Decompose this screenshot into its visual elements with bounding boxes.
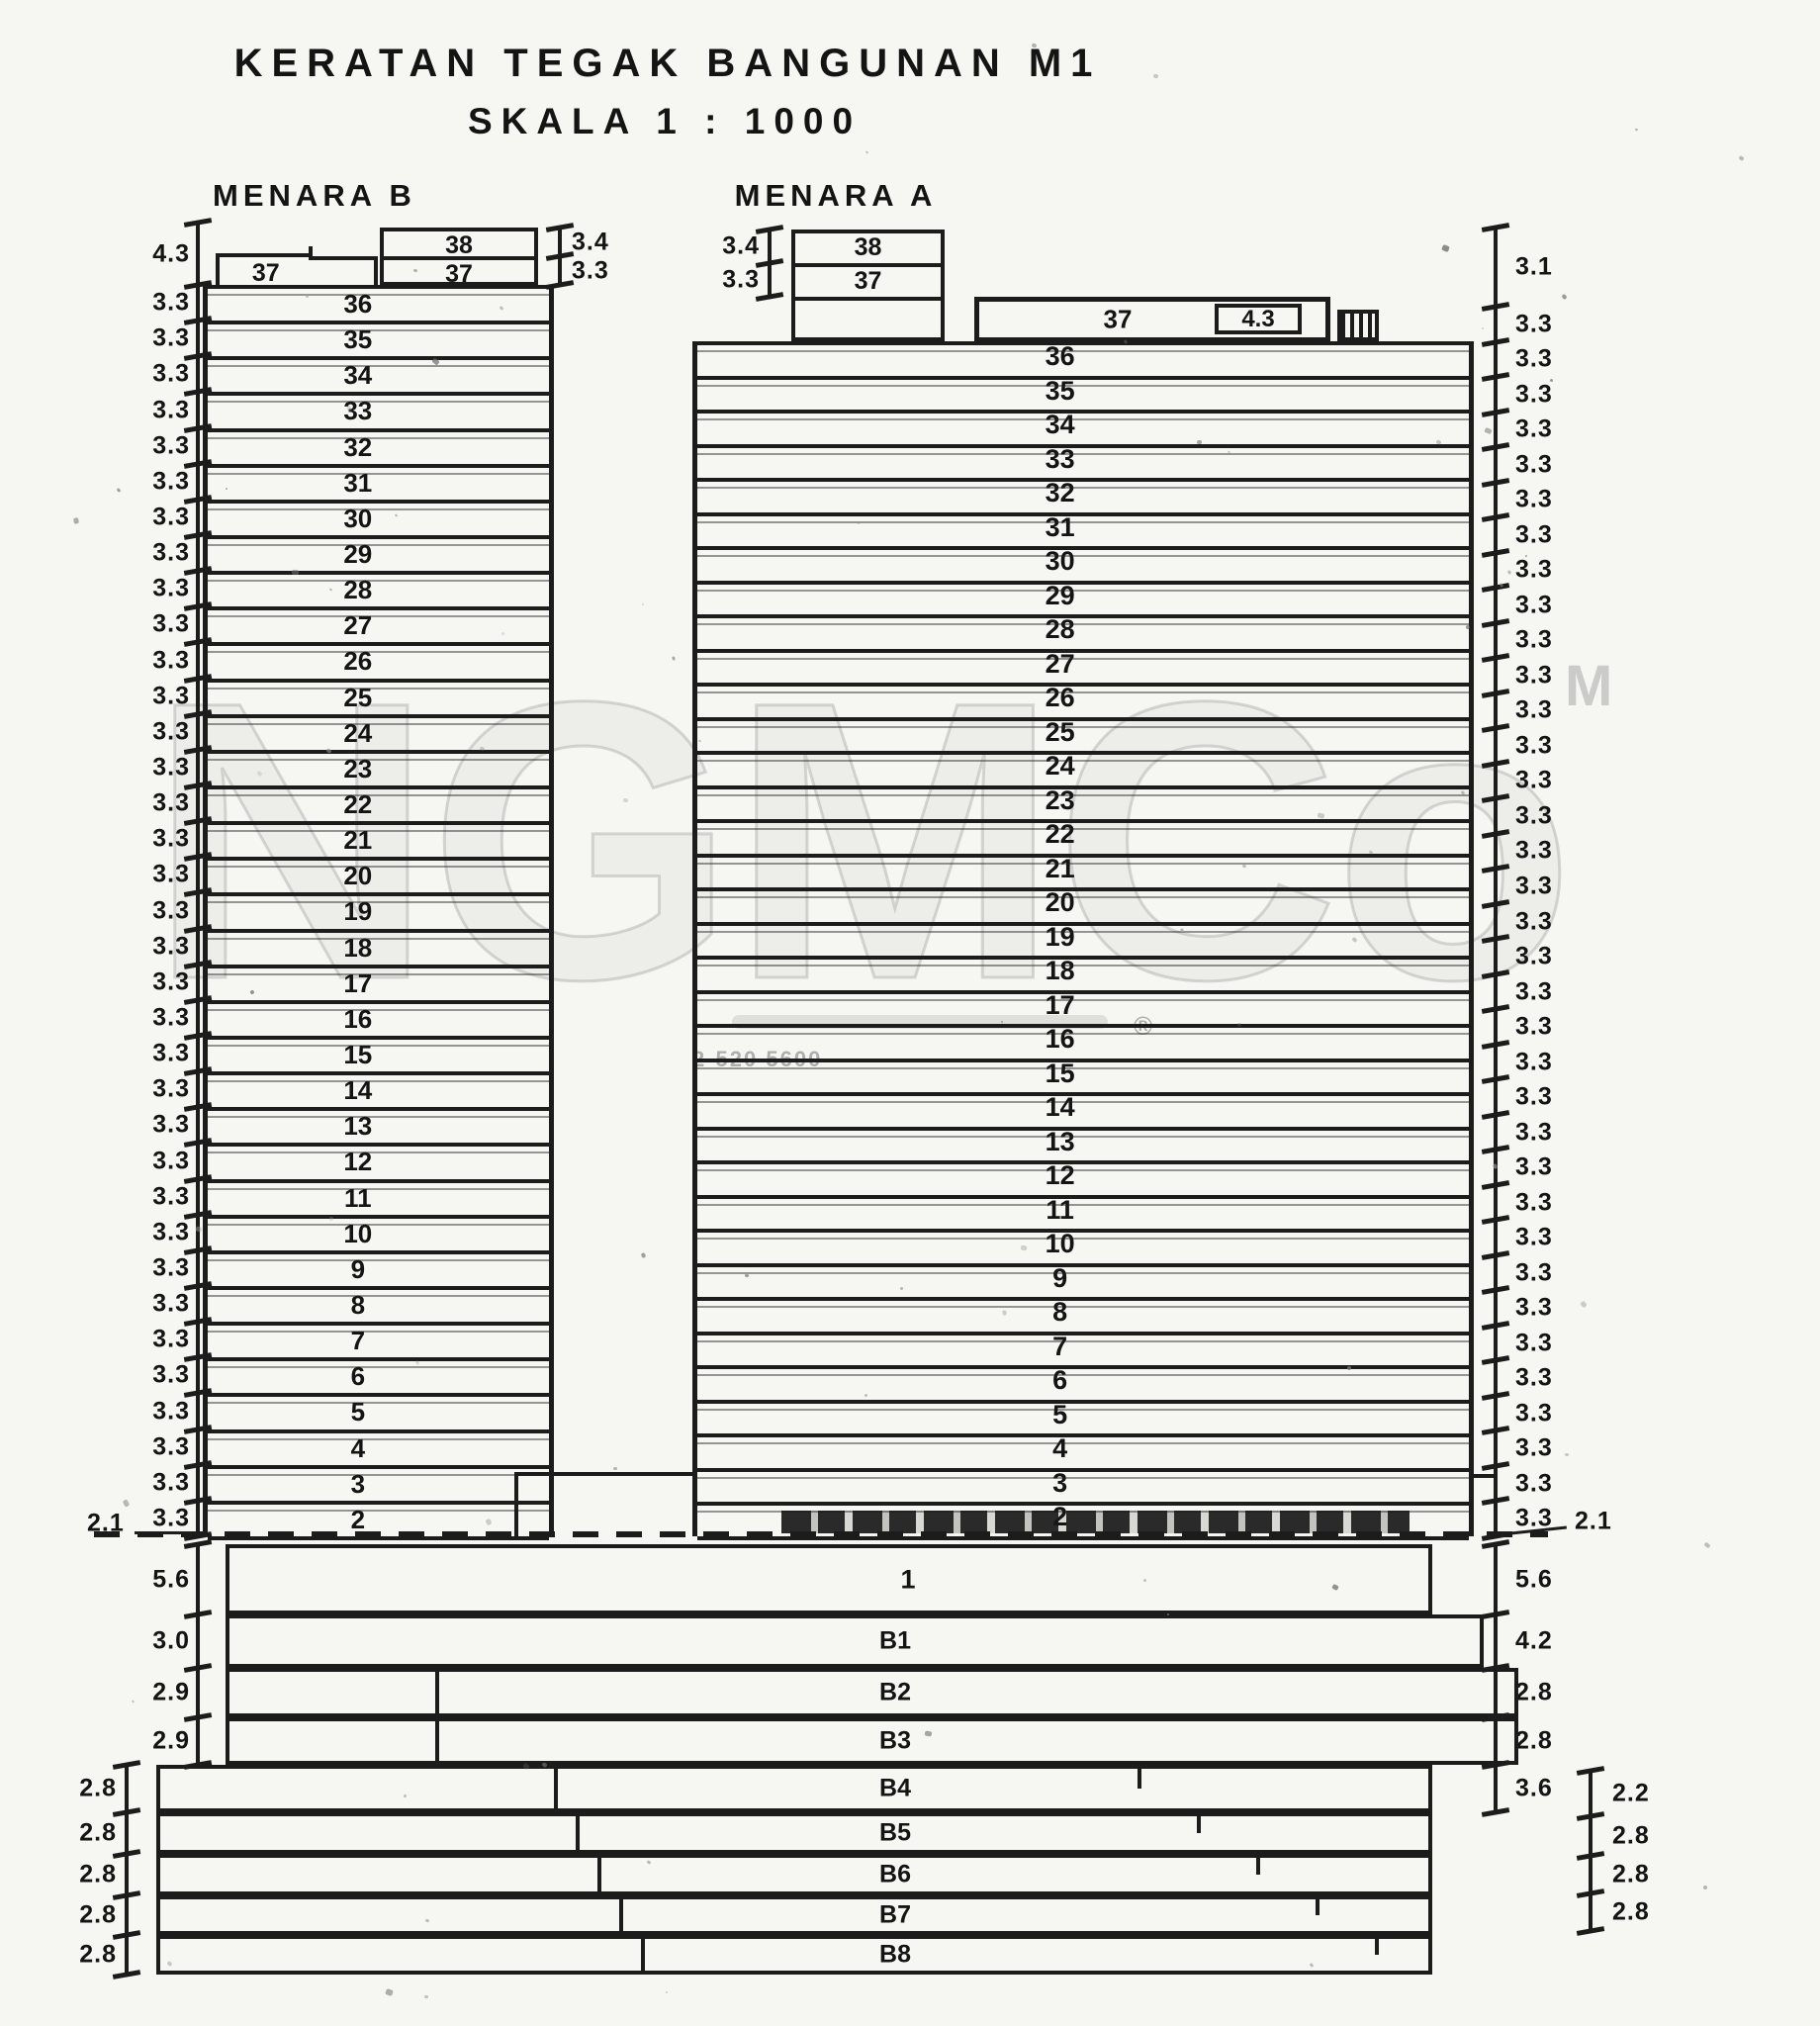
floor-number: 16: [343, 1004, 372, 1035]
dim-label: 3.3: [152, 396, 190, 424]
basement-band: [156, 1895, 1432, 1935]
dim-label: 3.3: [152, 1253, 190, 1282]
floor-number: 29: [1046, 581, 1075, 611]
basement-band: [156, 1854, 1432, 1895]
floor-number: 19: [343, 896, 372, 927]
floor-row: 5: [208, 1397, 549, 1432]
dim-label: 3.3: [1515, 1364, 1553, 1393]
floor-row: 26: [697, 687, 1469, 721]
dim-label: 3.3: [152, 431, 190, 460]
floor-row: 28: [208, 575, 549, 610]
floor-row: 22: [697, 823, 1469, 858]
floor-number: 9: [351, 1254, 365, 1285]
floor-number: 16: [1046, 1024, 1075, 1055]
tower-a-penthouse: 38 37: [791, 230, 945, 341]
basement-floor-number: B5: [879, 1819, 911, 1848]
floor-number: 14: [1046, 1092, 1075, 1123]
floor-number: 5: [351, 1397, 365, 1427]
dim-label: 3.3: [1515, 310, 1553, 338]
floor-number: 20: [343, 861, 372, 891]
floor-number: 14: [343, 1075, 372, 1106]
floor-number: 17: [1046, 990, 1075, 1021]
scan-speckle: [1484, 427, 1492, 434]
scan-speckle: [864, 1394, 867, 1397]
dim-label: 3.3: [1515, 661, 1553, 690]
scan-speckle: [117, 488, 122, 493]
floor-row: 35: [208, 324, 549, 360]
dim-label: 3.3: [152, 1003, 190, 1032]
dim-label: 3.3: [1515, 1013, 1553, 1042]
basement-band: [156, 1765, 1432, 1812]
basement-step-line: [1256, 1854, 1260, 1875]
floor-number: 4: [1052, 1433, 1067, 1464]
dim-label: 3.1: [1515, 253, 1553, 282]
dim-label: 2.8: [1515, 1727, 1553, 1756]
basement-floor-number: B7: [879, 1901, 911, 1930]
floor-row: 19: [697, 926, 1469, 961]
ground-floor-band: [226, 1544, 1432, 1614]
scan-speckle: [925, 1730, 933, 1736]
dim-label: 3.3: [152, 1504, 190, 1532]
dim-label: 3.3: [1515, 450, 1553, 479]
scan-speckle: [1152, 73, 1158, 79]
dim-label: 3.3: [1515, 1224, 1553, 1252]
blueprint-canvas: KERATAN TEGAK BANGUNAN M1 SKALA 1 : 1000…: [0, 0, 1820, 2026]
tower-b-penthouse-floor-38: 38: [384, 231, 534, 260]
floor-row: 13: [697, 1131, 1469, 1165]
floor-row: 25: [697, 721, 1469, 756]
floor-row: 14: [208, 1075, 549, 1111]
floor-number: 27: [343, 610, 372, 641]
floor-number: 3: [1052, 1468, 1067, 1499]
floor-row: 6: [208, 1361, 549, 1397]
floor-row: 28: [697, 618, 1469, 653]
floor-row: 20: [208, 861, 549, 896]
floor-number: 30: [343, 504, 372, 534]
floor-number: 28: [343, 575, 372, 605]
floor-number: 35: [343, 324, 372, 355]
dim-label: 3.3: [1515, 1118, 1553, 1147]
floor-row: 17: [697, 994, 1469, 1029]
dim-label: 2.8: [79, 1861, 117, 1889]
dim-label: 3.3: [1515, 1329, 1553, 1357]
scan-speckle: [385, 1988, 394, 1996]
floor-row: 32: [697, 482, 1469, 516]
scan-speckle: [1703, 1886, 1708, 1890]
floor-number: 35: [1046, 376, 1075, 407]
dim-label: 2.8: [79, 1775, 117, 1803]
dim-label: 2.8: [1612, 1861, 1650, 1889]
basement-floor-number: B6: [879, 1861, 911, 1889]
floor-number: 17: [343, 968, 372, 999]
floor-number: 9: [1052, 1263, 1067, 1294]
dim-label: 3.3: [152, 717, 190, 746]
dim-label: 2.8: [1612, 1898, 1650, 1927]
floor-number: 15: [1046, 1059, 1075, 1089]
floor-row: 10: [208, 1219, 549, 1254]
floor-row: 29: [697, 585, 1469, 619]
dim-label: 3.3: [1515, 801, 1553, 830]
dim-label: 5.6: [152, 1565, 190, 1594]
dim-line: [125, 1765, 129, 1975]
dim-label: 3.3: [152, 1290, 190, 1319]
floor-row: 21: [208, 825, 549, 861]
dim-tick: [1577, 1926, 1604, 1936]
basement-band: [156, 1935, 1432, 1975]
floor-number: 10: [1046, 1229, 1075, 1259]
floor-row: 7: [697, 1335, 1469, 1370]
basement-step-line: [619, 1895, 623, 1935]
dim-tick: [546, 280, 574, 290]
floor-row: 17: [208, 968, 549, 1004]
floor-number: 3: [351, 1469, 365, 1500]
basement-band: [226, 1717, 1518, 1765]
floor-row: 16: [697, 1028, 1469, 1062]
floor-number: 12: [1046, 1160, 1075, 1191]
floor-number: 20: [1046, 887, 1075, 918]
floor-number: 15: [343, 1040, 372, 1070]
dim-label: 2.8: [79, 1941, 117, 1970]
floor-number: 18: [1046, 956, 1075, 986]
floor-number: 18: [343, 932, 372, 963]
floor-number: 5: [1052, 1400, 1067, 1430]
dim-label: 3.3: [1515, 1083, 1553, 1112]
roof-hatch-box: [1337, 310, 1379, 341]
dim-label: 3.3: [152, 896, 190, 925]
floor-row: 3: [697, 1472, 1469, 1507]
dim-label: 3.3: [152, 1397, 190, 1426]
basement-step-line: [576, 1812, 580, 1854]
floor-number: 32: [343, 432, 372, 463]
basement-step-line: [1197, 1812, 1201, 1833]
scan-speckle: [132, 1700, 135, 1704]
tower-b-label: MENARA B: [213, 178, 416, 214]
floor-row: 5: [697, 1404, 1469, 1438]
tower-a-penthouse-floor-37: 37: [795, 267, 941, 301]
dim-label: 3.3: [152, 360, 190, 389]
floor-number: 11: [344, 1182, 372, 1213]
basement-step-line: [1375, 1935, 1379, 1955]
basement-step-line: [554, 1765, 558, 1812]
dim-label: 3.3: [1515, 1048, 1553, 1076]
dim-label: 3.3: [152, 1218, 190, 1246]
dim-label: 3.3: [1515, 1434, 1553, 1463]
floor-number: 26: [1046, 683, 1075, 713]
dim-label: 3.3: [152, 932, 190, 961]
dim-label: 3.3: [1515, 731, 1553, 760]
floor-number: 32: [1046, 478, 1075, 508]
floor-row: 27: [697, 653, 1469, 688]
dim-label: 3.3: [152, 467, 190, 496]
floor-number: 34: [343, 360, 372, 391]
floor-row: 23: [697, 789, 1469, 824]
dim-label: 3.3: [152, 967, 190, 996]
floor-row: 33: [208, 396, 549, 431]
floor-number: 36: [343, 289, 372, 320]
floor-row: 9: [208, 1254, 549, 1290]
basement-floor-number: B3: [879, 1727, 911, 1756]
scan-speckle: [613, 1467, 617, 1470]
floor-row: 4: [208, 1433, 549, 1469]
dim-label: 3.3: [152, 503, 190, 531]
floor-number: 23: [343, 754, 372, 784]
dim-label: 3.3: [1515, 1153, 1553, 1182]
dim-label: 3.3: [1515, 415, 1553, 444]
dim-label: 3.3: [152, 539, 190, 568]
floor-row: 24: [208, 718, 549, 754]
basement-band: [226, 1614, 1484, 1668]
floor-number: 26: [343, 646, 372, 677]
floor-number: 31: [1046, 512, 1075, 543]
tower-b-penthouse-floor-37: 37: [384, 260, 534, 282]
dim-label: 2.8: [1612, 1822, 1650, 1851]
dim-label: 3.3: [152, 1432, 190, 1461]
floor-row: 27: [208, 610, 549, 646]
dim-label: 3.3: [152, 1111, 190, 1140]
floor-number: 28: [1046, 614, 1075, 645]
dim-label: 3.4: [572, 228, 609, 256]
dim-tick: [756, 292, 783, 302]
tower-a-roof-band: 37 4.3: [974, 297, 1330, 341]
basement-band: [226, 1668, 1518, 1717]
basement-floor-number: B4: [879, 1775, 911, 1803]
basement-floor-number: B8: [879, 1941, 911, 1970]
scan-speckle: [1703, 1542, 1710, 1549]
scan-speckle: [666, 1991, 668, 1993]
floor-row: 8: [208, 1290, 549, 1326]
floor-number: 27: [1046, 649, 1075, 680]
floor-number: 22: [1046, 819, 1075, 850]
floor-row: 16: [208, 1004, 549, 1040]
floor-row: 33: [697, 448, 1469, 483]
floor-number: 7: [1052, 1332, 1067, 1362]
dim-label: 3.3: [152, 1075, 190, 1104]
ground-surface-marking: [781, 1511, 1410, 1533]
tower-a-label: MENARA A: [735, 178, 938, 214]
scan-speckle: [413, 269, 417, 273]
dim-label: 4.3: [152, 239, 190, 268]
ground-floor-number: 1: [900, 1564, 915, 1595]
floor-number: 12: [343, 1147, 372, 1177]
dim-label: 4.2: [1515, 1627, 1553, 1656]
floor-number: 33: [1046, 444, 1075, 475]
basement-step-line: [1137, 1765, 1141, 1789]
dim-label: 3.6: [1515, 1775, 1553, 1803]
dim-label: 2.9: [152, 1679, 190, 1707]
floor-row: 35: [697, 380, 1469, 414]
dim-label: 3.3: [152, 1468, 190, 1497]
floor-row: 14: [697, 1096, 1469, 1131]
dim-label: 3.3: [152, 575, 190, 603]
floor-number: 23: [1046, 785, 1075, 816]
tower-a-roof-floor-number: 37: [1104, 305, 1133, 335]
floor-row: 20: [697, 891, 1469, 926]
scan-speckle: [642, 603, 645, 606]
floor-row: 11: [208, 1183, 549, 1219]
floor-row: 32: [208, 432, 549, 468]
floor-row: 36: [697, 345, 1469, 380]
floor-row: 6: [697, 1369, 1469, 1404]
scan-speckle: [292, 570, 299, 575]
floor-row: 29: [208, 539, 549, 575]
floor-number: 25: [1046, 717, 1075, 748]
scan-speckle: [73, 517, 79, 524]
floor-number: 8: [351, 1290, 365, 1321]
dim-label: 3.3: [1515, 1258, 1553, 1287]
floor-number: 8: [1052, 1297, 1067, 1328]
dim-label: 3.3: [152, 324, 190, 353]
ground-offset-right: 2.1: [1575, 1508, 1612, 1536]
floor-row: 8: [697, 1301, 1469, 1335]
scan-speckle: [1580, 1301, 1588, 1309]
tower-b-shaft: 3635343332313029282726252423222120191817…: [203, 285, 554, 1536]
dim-label: 3.3: [1515, 1294, 1553, 1323]
dim-label: 3.3: [1515, 696, 1553, 725]
dim-label: 3.3: [152, 1040, 190, 1068]
basement-step-line: [641, 1935, 645, 1975]
floor-row: 36: [208, 289, 549, 324]
floor-row: 10: [697, 1233, 1469, 1267]
dim-label: 3.3: [1515, 837, 1553, 866]
scan-speckle: [1550, 379, 1554, 383]
floor-number: 34: [1046, 410, 1075, 440]
floor-row: 26: [208, 646, 549, 682]
tower-b-penthouse: 38 37: [380, 228, 538, 286]
dim-label: 3.3: [1515, 345, 1553, 374]
floor-number: 10: [343, 1219, 372, 1249]
page-subtitle: SKALA 1 : 1000: [468, 101, 862, 142]
dim-label: 3.3: [1515, 380, 1553, 409]
basement-step-line: [435, 1668, 439, 1717]
floor-number: 6: [351, 1361, 365, 1392]
dim-label: 2.8: [79, 1819, 117, 1848]
tower-b-roof-step: [309, 246, 378, 260]
floor-number: 7: [351, 1326, 365, 1356]
dim-label: 3.3: [152, 1147, 190, 1175]
dim-label: 3.3: [152, 1326, 190, 1354]
tower-b-roof-floor-number: 37: [252, 259, 280, 288]
scan-speckle: [641, 1252, 647, 1258]
scan-speckle: [1441, 244, 1450, 252]
floor-number: 36: [1046, 341, 1075, 372]
tower-a-roof-dim-box: 4.3: [1215, 304, 1302, 334]
floor-row: 30: [208, 504, 549, 539]
dim-label: 3.3: [152, 682, 190, 710]
dim-line: [196, 1544, 200, 1765]
floor-row: 25: [208, 683, 549, 718]
floor-number: 25: [343, 682, 372, 712]
dim-label: 3.3: [152, 861, 190, 889]
dim-label: 3.3: [722, 266, 760, 295]
dim-line: [1494, 228, 1498, 1536]
floor-number: 4: [351, 1432, 365, 1463]
dim-label: 2.8: [79, 1901, 117, 1930]
dim-label: 3.3: [1515, 520, 1553, 549]
dim-tick: [113, 1970, 140, 1980]
dim-label: 3.3: [1515, 767, 1553, 795]
dim-label: 2.9: [152, 1727, 190, 1756]
dim-label: 3.3: [152, 825, 190, 854]
floor-number: 22: [343, 789, 372, 820]
dim-label: 3.3: [152, 1361, 190, 1390]
floor-row: 15: [697, 1062, 1469, 1097]
dim-label: 3.3: [1515, 1505, 1553, 1533]
dim-label: 5.6: [1515, 1565, 1553, 1594]
floor-row: 34: [208, 360, 549, 396]
scan-speckle: [1021, 1244, 1028, 1250]
dim-label: 3.3: [152, 610, 190, 639]
page-title: KERATAN TEGAK BANGUNAN M1: [234, 42, 1102, 86]
dim-label: 3.3: [1515, 591, 1553, 619]
scan-speckle: [1197, 440, 1202, 444]
dim-label: 3.3: [1515, 977, 1553, 1006]
floor-number: 30: [1046, 546, 1075, 577]
floor-row: 24: [697, 755, 1469, 789]
floor-row: 12: [697, 1164, 1469, 1199]
floor-number: 31: [343, 468, 372, 499]
floor-number: 13: [343, 1111, 372, 1142]
floor-row: 34: [697, 414, 1469, 448]
tower-a-roof-dim: 4.3: [1241, 306, 1274, 333]
dim-label: 3.3: [1515, 1399, 1553, 1427]
dim-line: [196, 223, 200, 1536]
floor-number: 29: [343, 539, 372, 570]
floor-number: 21: [1046, 854, 1075, 884]
dim-label: 3.3: [152, 789, 190, 818]
floor-row: 31: [208, 468, 549, 504]
floor-number: 11: [1046, 1195, 1074, 1226]
floor-row: 19: [208, 896, 549, 932]
dim-label: 2.2: [1612, 1780, 1650, 1808]
floor-row: 18: [208, 933, 549, 968]
floor-number: 24: [343, 718, 372, 749]
basement-step-line: [435, 1717, 439, 1765]
floor-number: 24: [1046, 751, 1075, 782]
dim-label: 3.3: [152, 753, 190, 782]
floor-row: 21: [697, 858, 1469, 892]
floor-row: 9: [697, 1267, 1469, 1302]
basement-band: [156, 1812, 1432, 1854]
floor-row: 4: [697, 1437, 1469, 1472]
floor-row: 18: [697, 960, 1469, 994]
dim-label: 3.3: [1515, 556, 1553, 585]
ground-line-dashed: [94, 1531, 1548, 1537]
floor-number: 6: [1052, 1365, 1067, 1396]
basement-step-line: [597, 1854, 601, 1895]
dim-label: 3.3: [1515, 943, 1553, 971]
dim-label: 3.3: [152, 289, 190, 318]
dim-label: 3.3: [152, 1182, 190, 1211]
floor-row: 30: [697, 550, 1469, 585]
scan-speckle: [1635, 129, 1638, 132]
dim-label: 3.3: [572, 256, 609, 285]
scan-speckle: [1561, 294, 1567, 300]
dim-label: 3.3: [152, 646, 190, 675]
scan-speckle: [1738, 155, 1744, 161]
floor-number: 19: [1046, 922, 1075, 953]
dim-line: [1589, 1771, 1592, 1931]
dim-label: 3.3: [1515, 907, 1553, 936]
basement-step-line: [1316, 1895, 1319, 1915]
dim-tick: [1482, 1807, 1509, 1817]
floor-row: 12: [208, 1147, 549, 1182]
floor-row: 11: [697, 1199, 1469, 1234]
scan-speckle: [865, 150, 869, 153]
dim-label: 3.3: [1515, 1188, 1553, 1217]
floor-row: 15: [208, 1040, 549, 1075]
dim-label: 3.3: [1515, 1469, 1553, 1498]
floor-number: 21: [343, 825, 372, 856]
